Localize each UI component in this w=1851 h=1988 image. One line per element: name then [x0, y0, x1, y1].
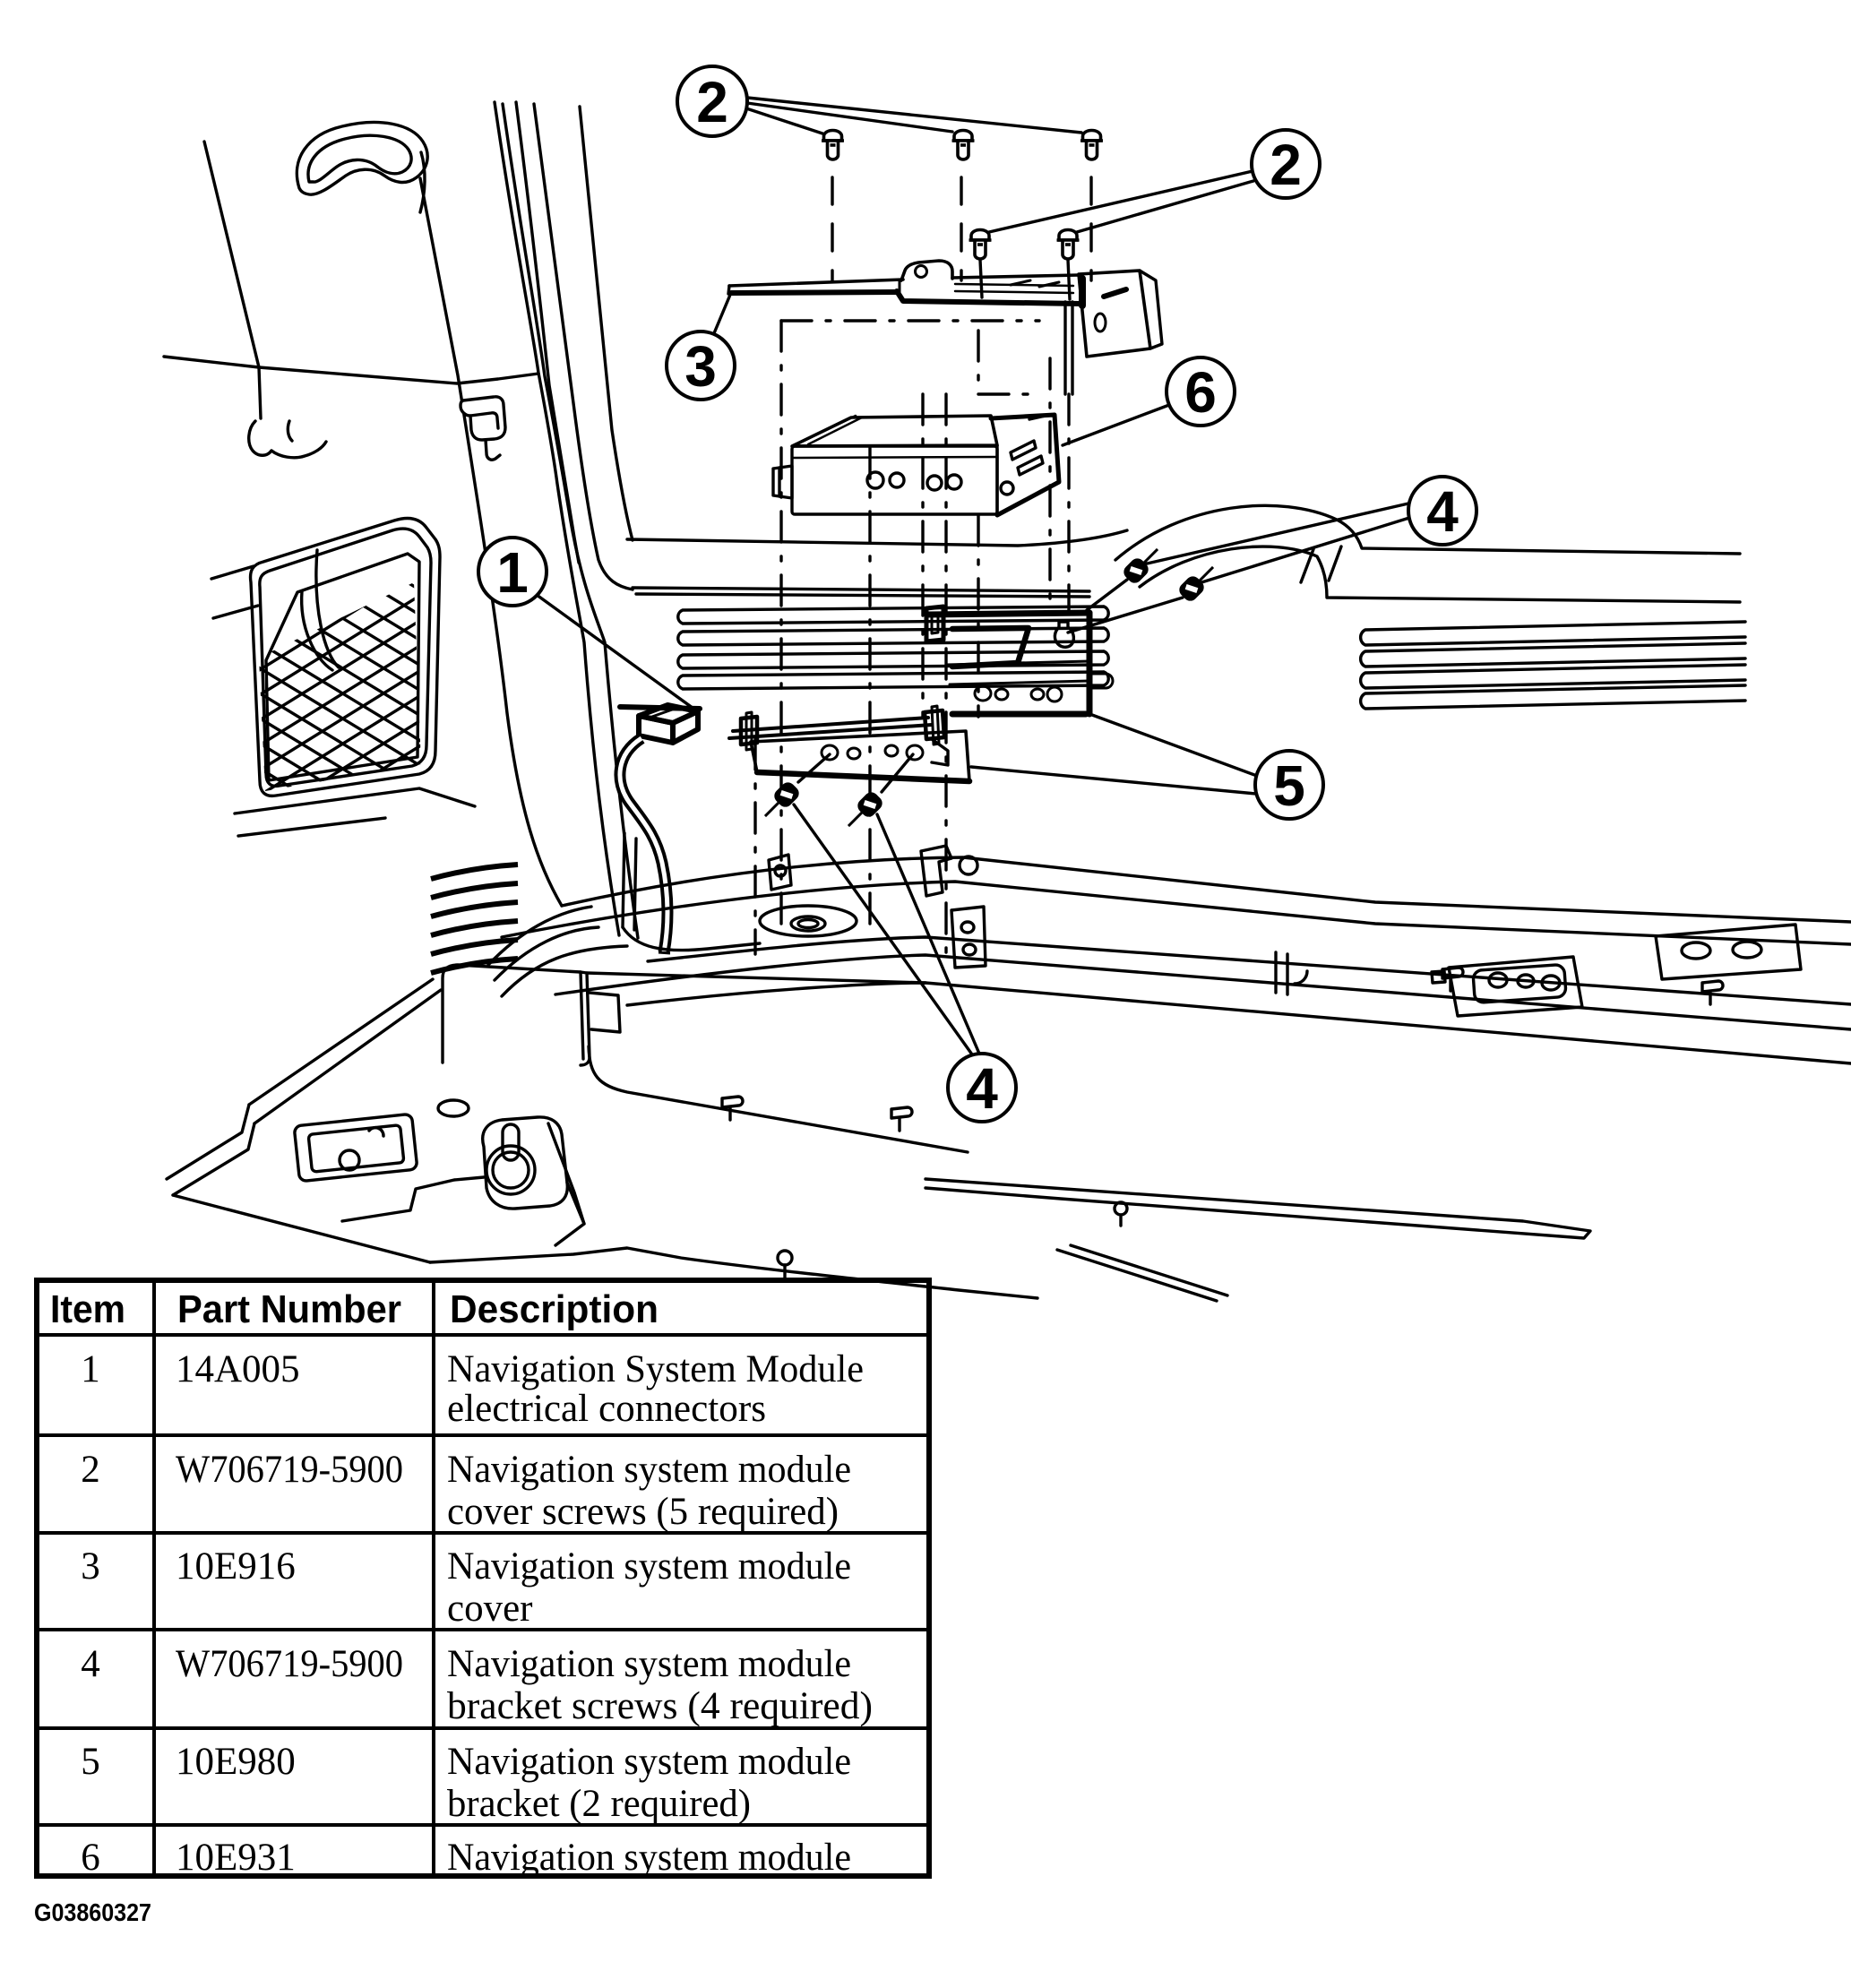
- svg-text:10E916: 10E916: [176, 1545, 296, 1588]
- svg-text:2: 2: [1270, 133, 1302, 197]
- svg-text:2: 2: [81, 1449, 100, 1491]
- svg-text:bracket (2 required): bracket (2 required): [447, 1783, 751, 1825]
- svg-text:electrical connectors: electrical connectors: [447, 1388, 766, 1430]
- svg-text:6: 6: [1184, 360, 1217, 425]
- svg-text:Item: Item: [50, 1287, 125, 1331]
- svg-text:Part Number: Part Number: [177, 1287, 401, 1331]
- svg-text:Navigation system module: Navigation system module: [447, 1545, 851, 1588]
- svg-text:Navigation system module: Navigation system module: [447, 1449, 851, 1491]
- svg-text:4: 4: [966, 1056, 998, 1121]
- svg-text:Navigation system module: Navigation system module: [447, 1741, 851, 1783]
- svg-text:G03860327: G03860327: [34, 1898, 151, 1926]
- svg-text:3: 3: [81, 1545, 100, 1588]
- svg-text:Description: Description: [450, 1287, 659, 1331]
- svg-text:4: 4: [1426, 479, 1459, 544]
- svg-text:W706719-5900: W706719-5900: [176, 1449, 403, 1491]
- svg-text:5: 5: [81, 1741, 100, 1783]
- svg-text:Navigation System Module: Navigation System Module: [447, 1348, 864, 1390]
- svg-text:W706719-5900: W706719-5900: [176, 1643, 403, 1685]
- svg-text:5: 5: [1273, 753, 1305, 818]
- svg-text:cover: cover: [447, 1588, 533, 1630]
- svg-text:4: 4: [81, 1643, 100, 1685]
- svg-text:Navigation system module: Navigation system module: [447, 1837, 851, 1879]
- svg-text:bracket screws (4 required): bracket screws (4 required): [447, 1685, 873, 1727]
- svg-text:1: 1: [496, 540, 529, 605]
- svg-text:10E931: 10E931: [176, 1837, 296, 1879]
- svg-text:1: 1: [81, 1348, 100, 1390]
- svg-text:10E980: 10E980: [176, 1741, 296, 1783]
- svg-text:3: 3: [684, 334, 717, 399]
- svg-text:6: 6: [81, 1837, 100, 1879]
- svg-text:cover screws (5 required): cover screws (5 required): [447, 1491, 839, 1533]
- svg-text:2: 2: [696, 70, 728, 134]
- svg-text:Navigation system module: Navigation system module: [447, 1643, 851, 1685]
- svg-text:14A005: 14A005: [176, 1348, 300, 1390]
